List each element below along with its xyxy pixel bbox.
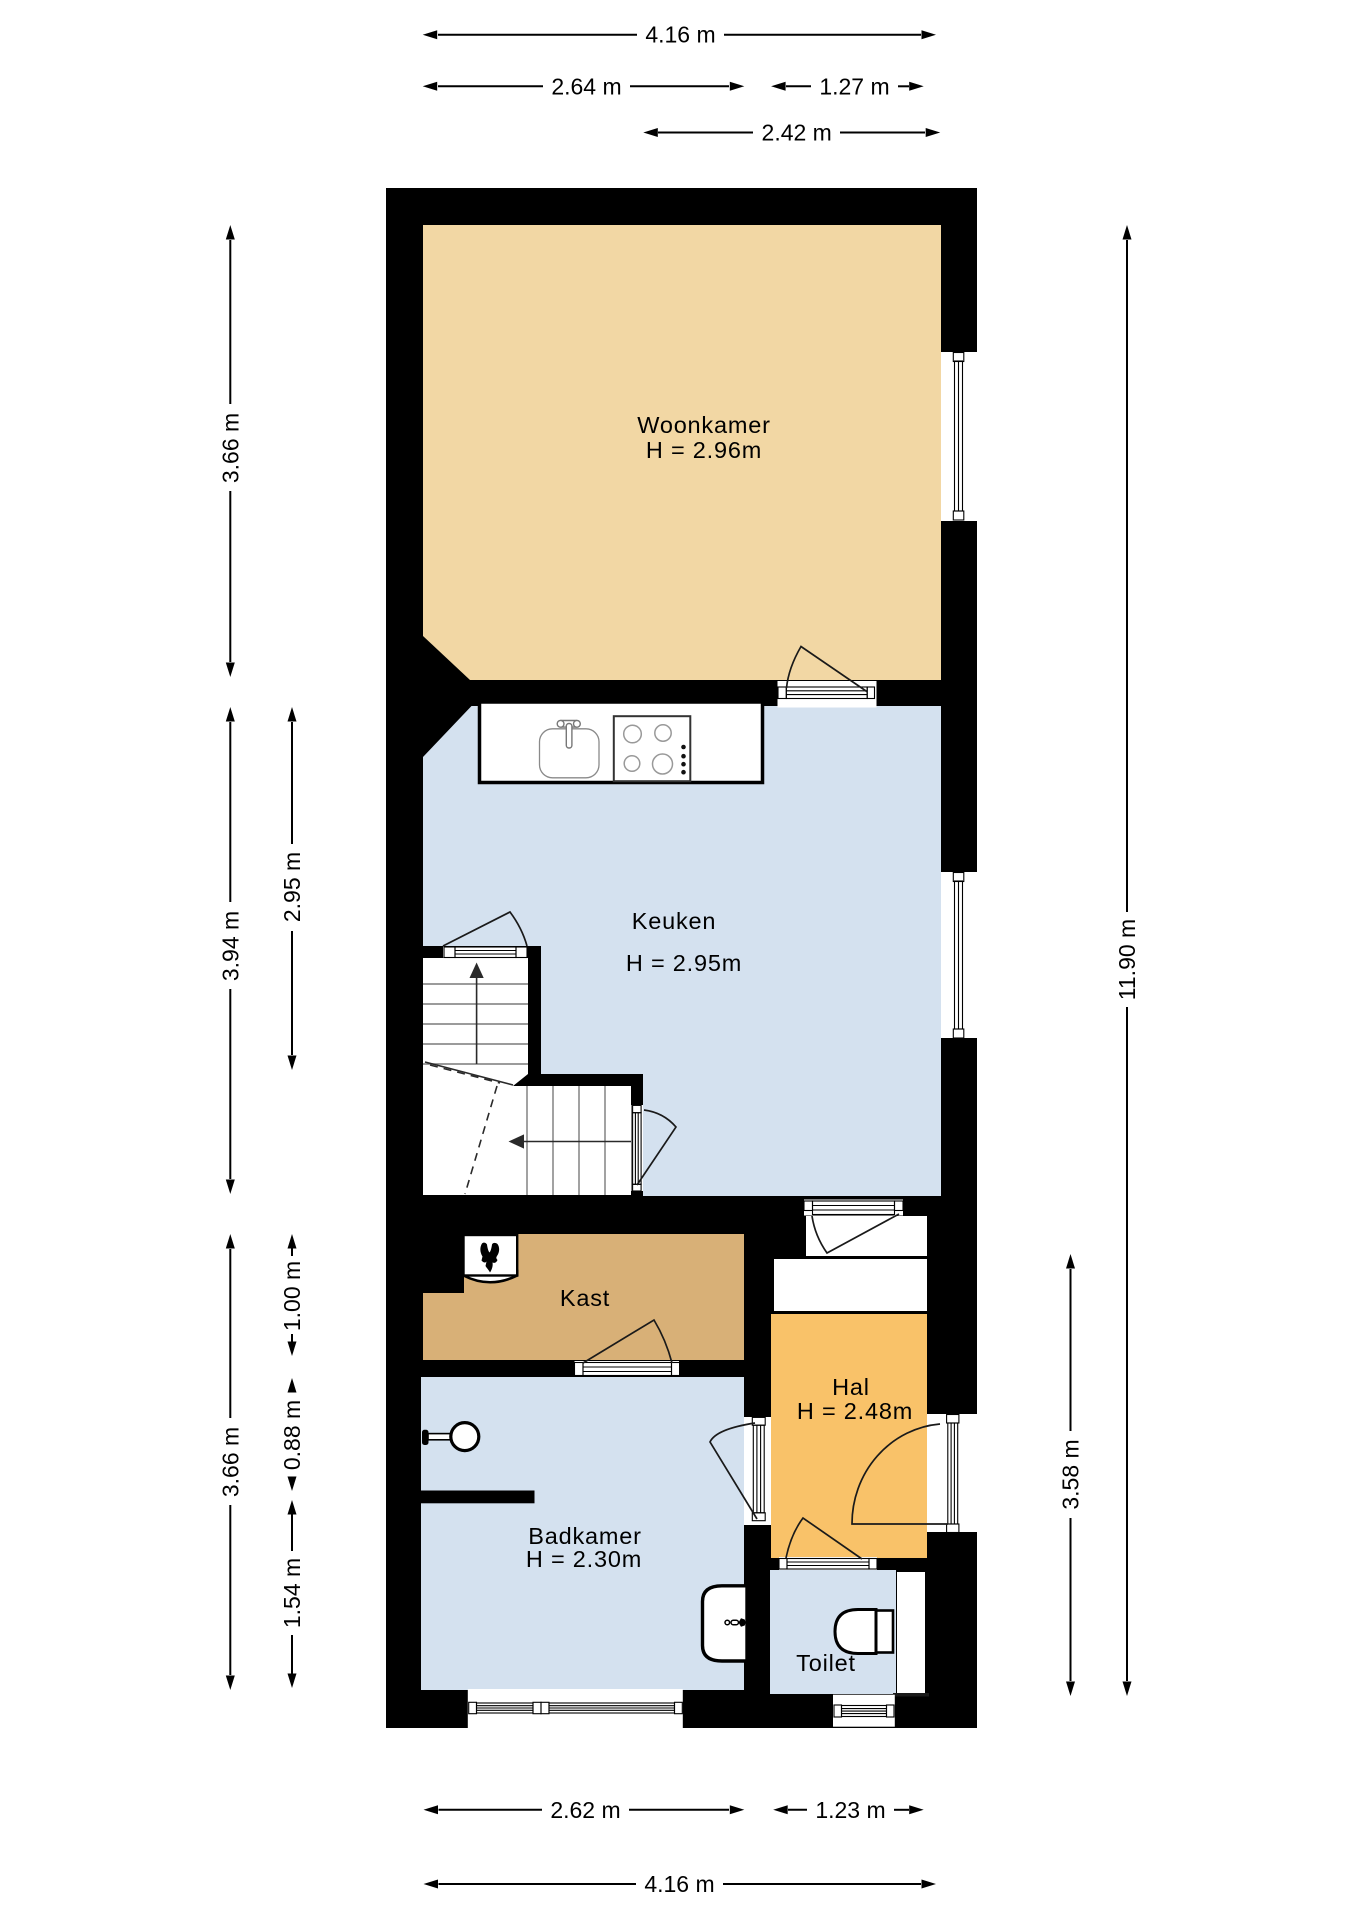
svg-text:2.42 m: 2.42 m <box>762 120 832 146</box>
svg-text:Toilet: Toilet <box>796 1650 856 1676</box>
svg-text:2.62 m: 2.62 m <box>550 1797 620 1823</box>
svg-text:2.95 m: 2.95 m <box>279 852 305 922</box>
svg-text:3.66 m: 3.66 m <box>217 413 243 483</box>
svg-text:2.64 m: 2.64 m <box>551 73 621 99</box>
svg-text:Kast: Kast <box>560 1285 610 1311</box>
svg-text:1.27 m: 1.27 m <box>819 73 889 99</box>
svg-text:1.23 m: 1.23 m <box>815 1797 885 1823</box>
svg-text:H = 2.48m: H = 2.48m <box>797 1398 913 1424</box>
svg-text:3.58 m: 3.58 m <box>1058 1439 1084 1509</box>
svg-text:H = 2.95m: H = 2.95m <box>626 950 742 976</box>
svg-text:0.88 m: 0.88 m <box>279 1400 305 1470</box>
svg-text:4.16 m: 4.16 m <box>645 22 715 48</box>
svg-text:H = 2.30m: H = 2.30m <box>526 1546 642 1572</box>
svg-text:Keuken: Keuken <box>632 908 717 934</box>
svg-text:Hal: Hal <box>832 1374 870 1400</box>
svg-text:11.90 m: 11.90 m <box>1114 919 1140 1000</box>
svg-text:4.16 m: 4.16 m <box>644 1871 714 1897</box>
svg-text:3.66 m: 3.66 m <box>217 1427 243 1497</box>
svg-text:3.94 m: 3.94 m <box>217 911 243 981</box>
svg-text:Woonkamer: Woonkamer <box>637 412 770 438</box>
svg-text:1.54 m: 1.54 m <box>279 1558 305 1628</box>
svg-text:1.00 m: 1.00 m <box>279 1261 305 1331</box>
svg-text:H = 2.96m: H = 2.96m <box>646 437 762 463</box>
